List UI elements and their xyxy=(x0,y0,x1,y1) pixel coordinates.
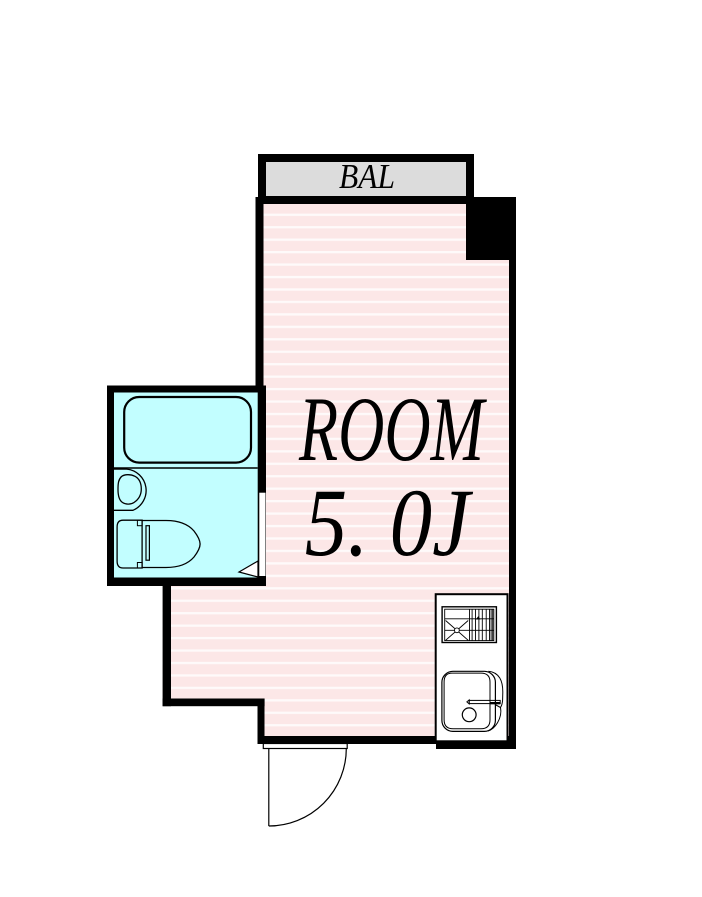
svg-text:BAL: BAL xyxy=(339,157,395,196)
svg-text:ROOM: ROOM xyxy=(298,378,487,480)
svg-text:5. 0J: 5. 0J xyxy=(305,469,474,576)
